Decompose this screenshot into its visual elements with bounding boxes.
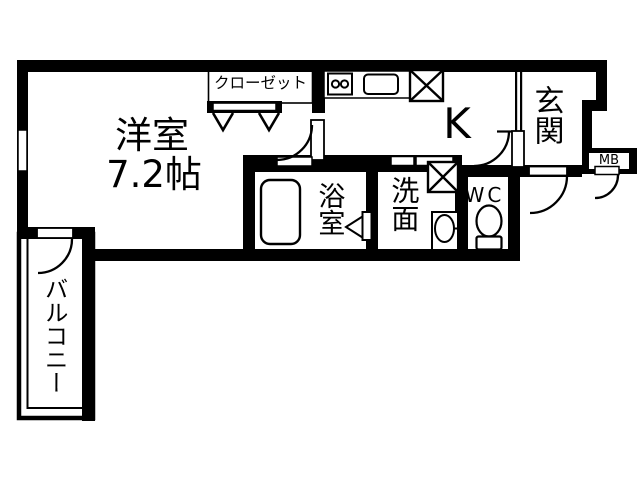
bath-sliding-door-leaf	[277, 157, 312, 166]
hall-door-arc	[474, 131, 509, 166]
sink-icon	[364, 75, 398, 95]
washing-machine-space-icon	[428, 162, 458, 192]
entrance-door-leaf	[529, 167, 567, 176]
wc-label: WC	[462, 185, 507, 206]
meter-box-label: MB	[588, 152, 630, 170]
hall-door-leaf	[512, 131, 524, 167]
floor-plan: 洋室 7.2帖 クローゼット K 玄関 MB 浴室 洗面 WC バルコニー	[0, 0, 640, 480]
wash-label: 洗面	[389, 176, 418, 232]
bath-door-icon	[346, 212, 372, 240]
toilet-icon	[477, 206, 502, 250]
closet-label: クローゼット	[209, 75, 312, 91]
window-icon	[18, 130, 27, 171]
floor-plan-drawing	[0, 0, 640, 480]
balcony-label: バルコニー	[42, 277, 67, 395]
wash-basin-icon	[432, 212, 458, 250]
room-label: 洋室	[61, 117, 243, 156]
mb-door-arc	[595, 175, 618, 198]
bath-label: 浴室	[314, 182, 342, 236]
kitchen-label: K	[438, 102, 476, 146]
balcony-door-leaf	[37, 228, 73, 238]
room-door-arc	[277, 125, 312, 160]
wash-sliding-door-leaf	[391, 157, 414, 166]
bathtub-icon	[261, 180, 300, 244]
refrigerator-space-icon	[410, 70, 443, 101]
entrance-door-arc	[530, 176, 567, 213]
kitchen-counter	[324, 71, 410, 98]
entrance-label: 玄関	[530, 85, 562, 145]
balcony-door-arc	[38, 239, 72, 273]
room-size-label: 7.2帖	[61, 156, 247, 195]
